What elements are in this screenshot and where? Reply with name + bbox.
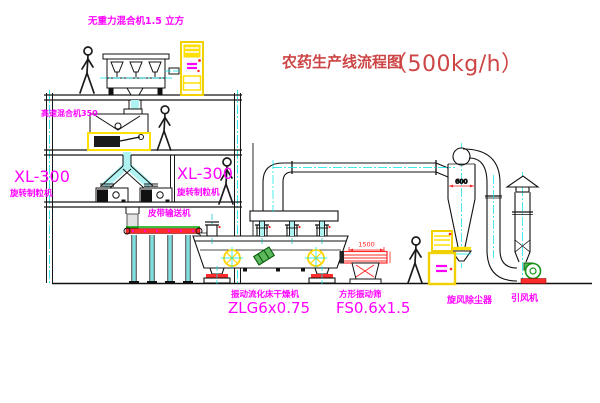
exhaust-hood-and-duct [250,160,455,236]
control-cabinet-right [429,231,455,284]
dryer-model-label: ZLG6x0.75 [228,299,310,317]
discharge-chute [126,207,139,228]
cyclone-label: 旋风除尘器 [446,294,493,306]
granulator-right-model-label: XL-300 [177,164,233,183]
control-cabinet-top [181,42,203,95]
y-splitter-chute [101,152,153,188]
granulator-left-machine [96,184,128,202]
fan-label: 引风机 [511,292,538,304]
person-icon [80,47,94,93]
granulator-left-name-label: 旋转制粒机 [9,188,53,199]
induced-draft-fan [521,263,546,284]
cyclone-to-fan-duct [463,149,517,281]
cyclone-dimension: 600 [449,178,474,188]
diagram-canvas: 600 [0,0,600,403]
screen-model-label: FS0.6x1.5 [336,299,410,317]
person-icon [157,106,170,150]
diagram-title: 农药生产线流程图 [281,53,402,71]
cyclone-dim-text: 600 [455,178,467,186]
dryer-legs [204,266,335,284]
granulator-right-machine [140,184,172,202]
granulator-right-name-label: 旋转制粒机 [176,187,220,198]
pesticide-line-flow-diagram: 600 [0,0,600,403]
granulator-left-model-label: XL-300 [14,167,70,186]
gravity-free-mixer [100,54,183,110]
indicator-dot [198,59,201,62]
person-icon [408,237,422,283]
vibrating-screen: 1500 [340,241,391,284]
screen-dim-text: 1500 [358,241,375,249]
high-speed-mixer-label: 高速混合机350 [41,108,98,118]
diagram-title-capacity: （500kg/h） [385,52,524,77]
belt-conveyor-label: 皮带输送机 [147,208,191,219]
gravity-mixer-label: 无重力混合机1.5 立方 [87,15,185,27]
